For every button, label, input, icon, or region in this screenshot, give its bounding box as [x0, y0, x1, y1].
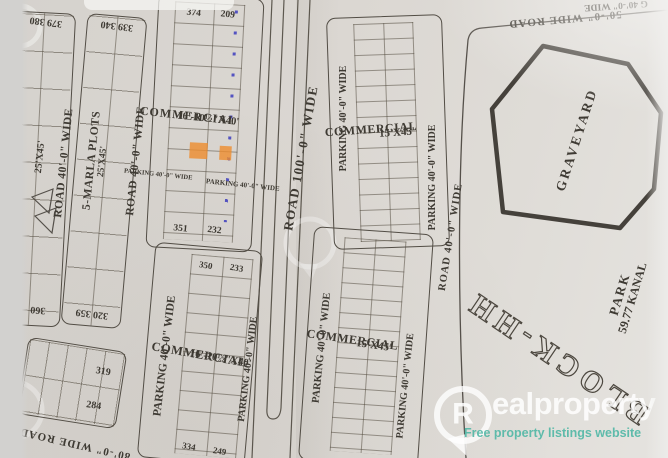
plot-number: 209 [220, 9, 235, 20]
plot-number: 350 [198, 259, 213, 271]
plot-number: 284 [85, 399, 102, 412]
highlight-orange-2 [219, 146, 232, 161]
commercial-size-label: 15'X45' [379, 125, 416, 139]
plot-number: 249 [212, 445, 227, 457]
plot-number: 334 [181, 440, 196, 452]
commercial-block-lower-right: PARKING 40'-0" WIDE COMMERCIAL 15'X45' P… [298, 226, 434, 458]
commercial-block-upper-right: PARKING 40'-0" WIDE COMMERCIAL 15'X45' P… [326, 14, 450, 250]
parking-label-left: PARKING 40'-0" WIDE [338, 66, 349, 172]
plot-grid [19, 339, 125, 427]
plot-number: 319 [95, 365, 112, 378]
commercial-block-upper-center: 374 209 COMMERCIAL 16'-10½"X40' PARKING … [145, 0, 264, 253]
plot-number: 232 [207, 225, 222, 236]
watermark-tagline: Free property listings website [464, 426, 641, 440]
parking-label-left: PARKING 40'-0" WIDE [311, 292, 334, 404]
plot-number: 374 [186, 8, 201, 19]
scanned-plot-map: 379 380 25'X45' 360 ROAD 40'-0" WIDE 339… [0, 0, 668, 458]
watermark: R ealproperty Free property listings web… [420, 378, 668, 458]
parking-label-right: PARKING 40'-0" WIDE [427, 125, 438, 231]
plot-number: 233 [229, 262, 244, 274]
plot-number-strip-a-bottom: 360 [30, 303, 46, 315]
highlight-orange-1 [189, 142, 208, 159]
commercial-block-lower-center: 350 233 PARKING 40'-0" WIDE COMMERCIAL 1… [137, 242, 263, 458]
plot-block-bottom-left: 319 284 [17, 337, 128, 430]
plot-number: 351 [173, 223, 188, 234]
watermark-brand-text: ealproperty [492, 386, 655, 422]
